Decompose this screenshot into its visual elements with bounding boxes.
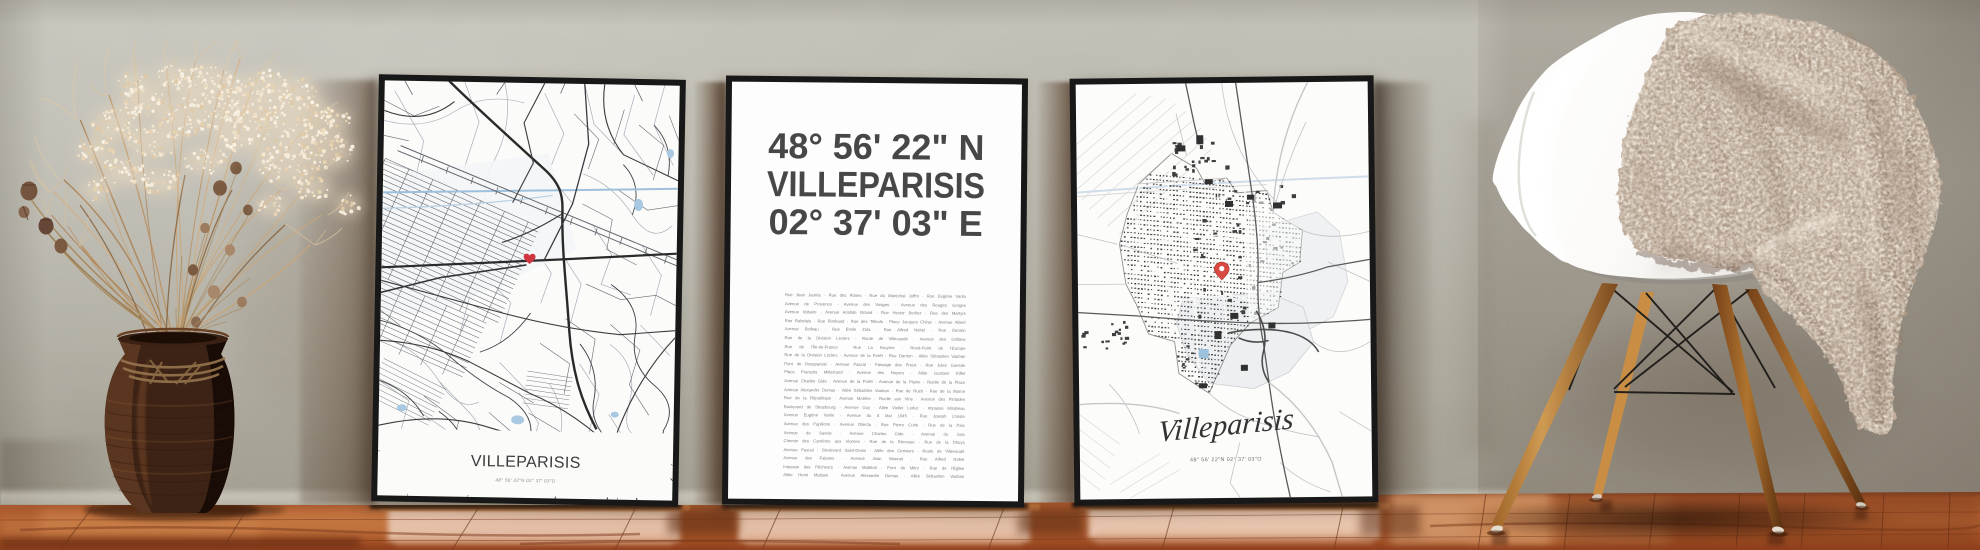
svg-text:Villeparisis: Villeparisis (1157, 401, 1294, 449)
svg-text:48° 56' 22"N 02° 37' 03"O: 48° 56' 22"N 02° 37' 03"O (495, 477, 555, 483)
svg-text:48° 56' 22"N 02° 37' 03"O: 48° 56' 22"N 02° 37' 03"O (1190, 457, 1262, 464)
svg-text:VILLEPARISIS: VILLEPARISIS (471, 453, 581, 472)
